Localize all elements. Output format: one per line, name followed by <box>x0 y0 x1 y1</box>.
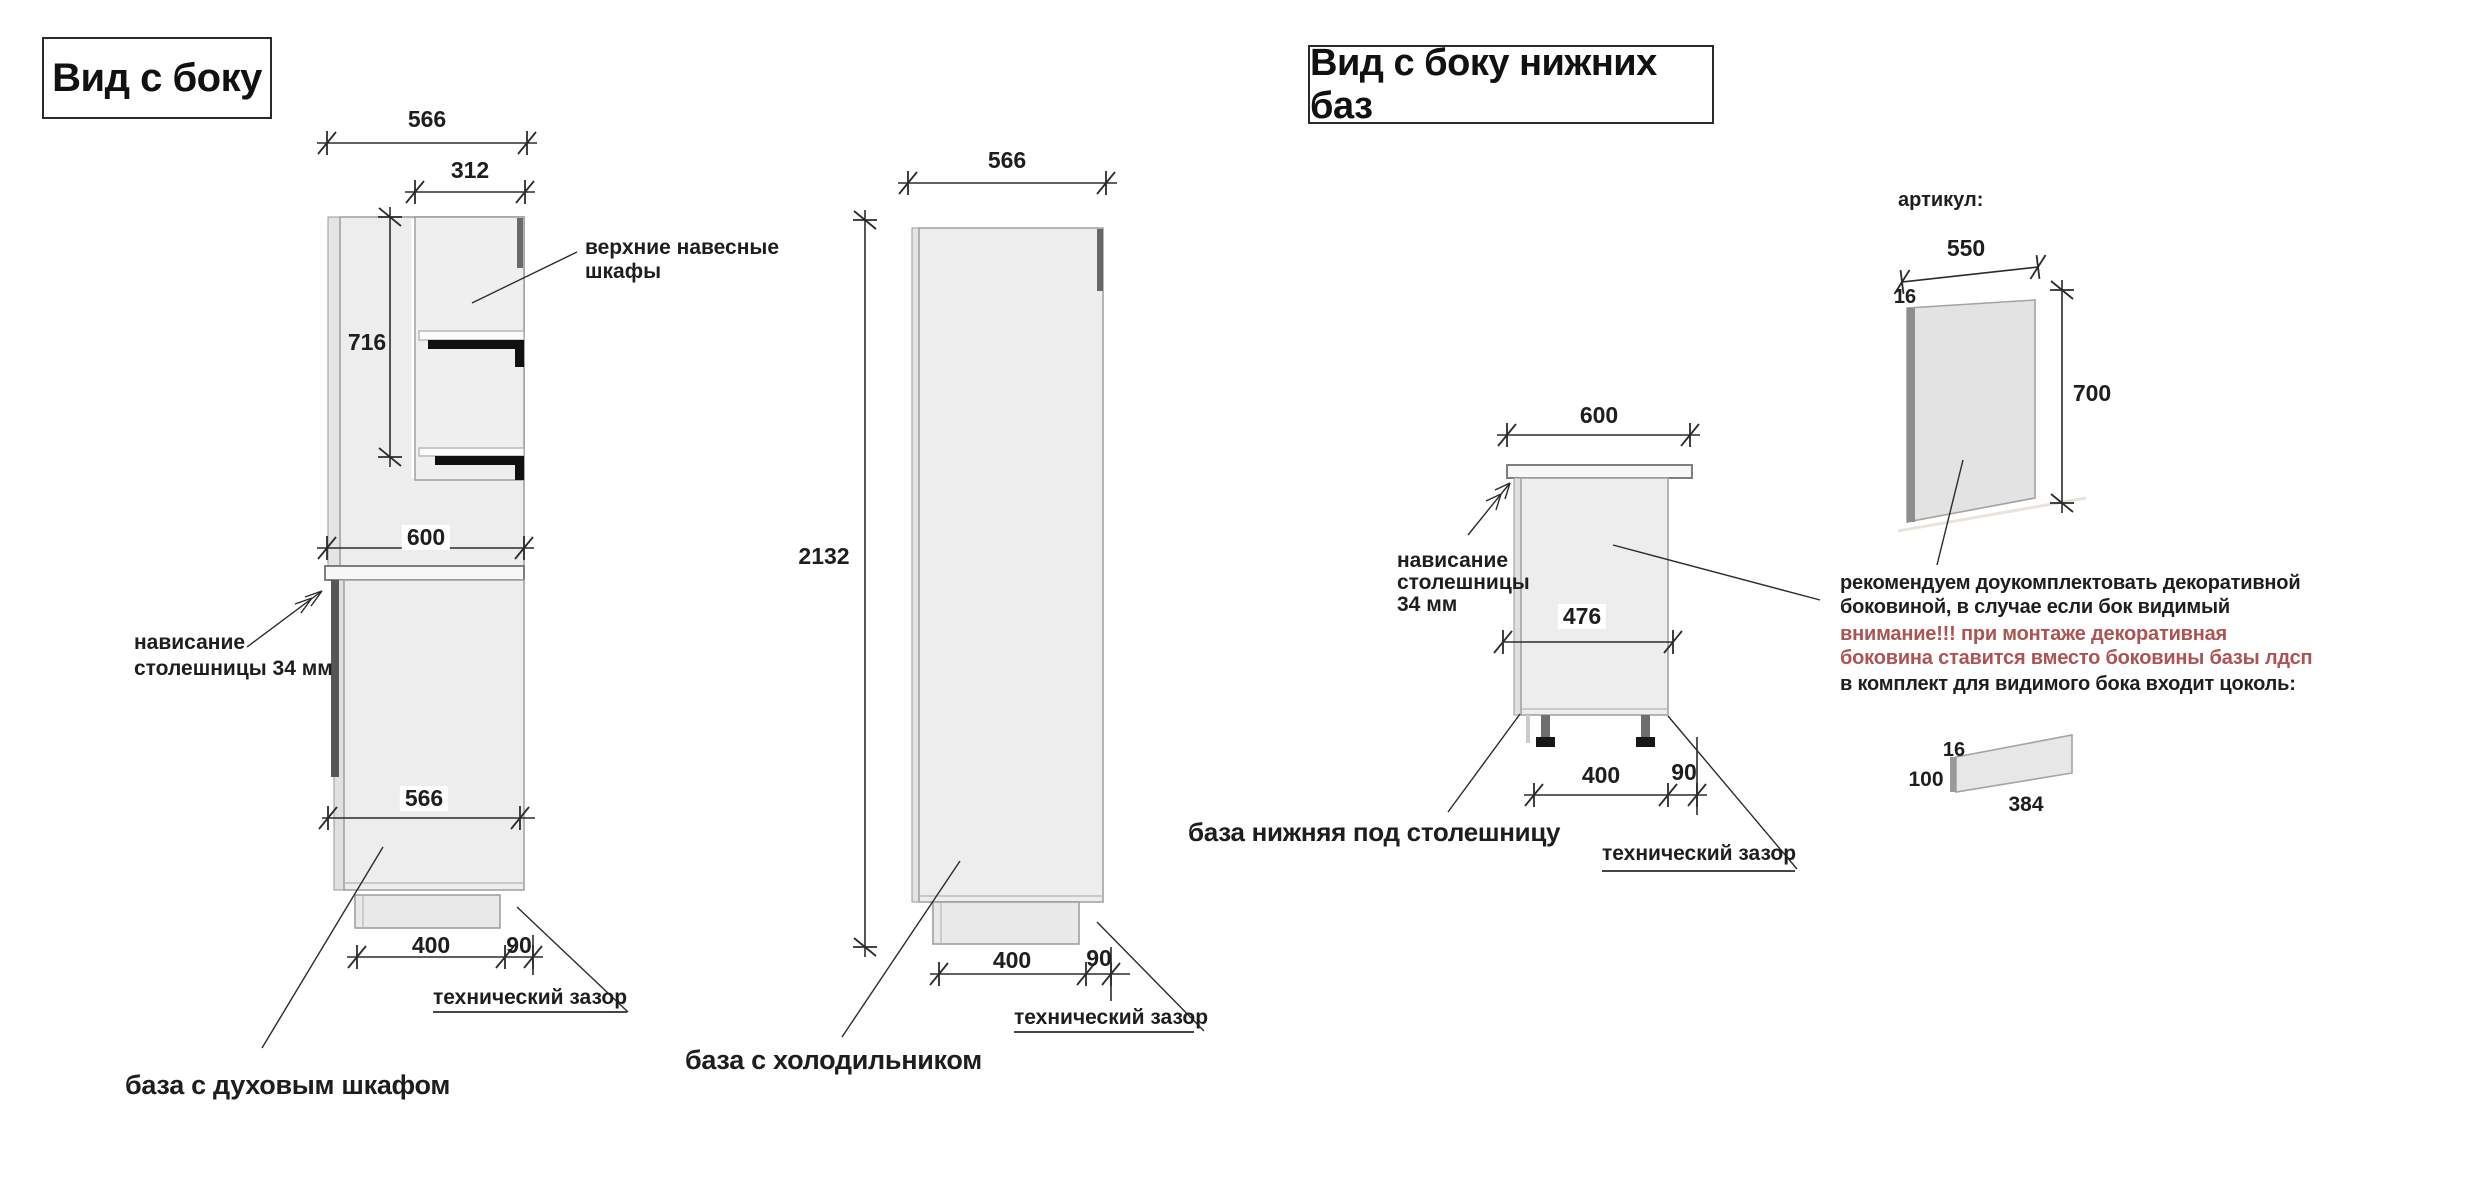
note-warning-line-2: боковина ставится вместо боковины базы л… <box>1840 646 2312 670</box>
left-view-title: Вид с боку <box>42 37 272 119</box>
wall-cabinets-label-line2: шкафы <box>585 260 661 283</box>
fridge-dim-gap-90: 90 <box>1086 946 1112 971</box>
oven-dim-counter-600: 600 <box>402 525 450 550</box>
panel-dim-thickness-16: 16 <box>1894 286 1916 308</box>
fridge-unit-drawing <box>912 228 1103 944</box>
decorative-panel-note: рекомендуем доукомплектовать декоративно… <box>1840 571 2312 696</box>
note-line-1: рекомендуем доукомплектовать декоративно… <box>1840 571 2312 595</box>
plinth-panel-drawing <box>1950 735 2072 792</box>
technical-drawing-page: Вид с боку Вид с боку нижних баз 566 312… <box>0 0 2484 1198</box>
oven-dim-depth-566: 566 <box>400 786 448 811</box>
fridge-unit-name: база с холодильником <box>685 1046 982 1076</box>
oven-dim-plinth-400: 400 <box>412 933 450 958</box>
plinth-dim-thickness-16: 16 <box>1943 739 1965 761</box>
oven-unit-name: база с духовым шкафом <box>125 1071 450 1101</box>
fridge-dim-height-2132: 2132 <box>798 544 849 569</box>
oven-overhang-label-line2: столешницы 34 мм <box>134 657 333 680</box>
oven-overhang-label-line1: нависание <box>134 631 245 654</box>
oven-dim-gap-90: 90 <box>506 933 532 958</box>
plinth-dim-length-384: 384 <box>2008 793 2043 816</box>
base-overhang-label-line3: 34 мм <box>1397 593 1457 616</box>
base-dim-plinth-400: 400 <box>1582 763 1620 788</box>
base-dim-top-600: 600 <box>1580 403 1618 428</box>
wall-cabinets-label-line1: верхние навесные <box>585 236 779 259</box>
panel-dim-height-700: 700 <box>2073 381 2111 406</box>
note-line-5: в комплект для видимого бока входит цоко… <box>1840 672 2312 696</box>
panel-dim-width-550: 550 <box>1947 236 1985 261</box>
oven-dim-top-566: 566 <box>408 107 446 132</box>
base-overhang-label-line2: столешницы <box>1397 571 1530 594</box>
fridge-dim-top-566: 566 <box>988 148 1026 173</box>
base-unit-name: база нижняя под столешницу <box>1188 818 1560 847</box>
note-warning-line-1: внимание!!! при монтаже декоративная <box>1840 622 2312 646</box>
side-panel-drawing <box>1898 300 2086 531</box>
dimension-lines <box>317 143 2062 1001</box>
oven-unit-drawing <box>325 217 524 928</box>
note-line-2: боковиной, в случае если бок видимый <box>1840 595 2312 619</box>
base-dim-front-476: 476 <box>1558 604 1606 629</box>
oven-dim-wall-height-716: 716 <box>348 330 386 355</box>
fridge-techgap-label: технический зазор <box>1014 1006 1208 1029</box>
right-view-title: Вид с боку нижних баз <box>1308 45 1714 124</box>
dimension-ticks <box>318 131 2074 986</box>
plinth-dim-height-100: 100 <box>1908 768 1943 791</box>
oven-dim-wall-312: 312 <box>451 158 489 183</box>
base-techgap-label: технический зазор <box>1602 842 1796 865</box>
fridge-dim-plinth-400: 400 <box>993 948 1031 973</box>
base-overhang-label-line1: нависание <box>1397 549 1508 572</box>
oven-techgap-label: технический зазор <box>433 986 627 1009</box>
base-dim-gap-90: 90 <box>1671 760 1697 785</box>
article-label: артикул: <box>1898 189 1983 211</box>
